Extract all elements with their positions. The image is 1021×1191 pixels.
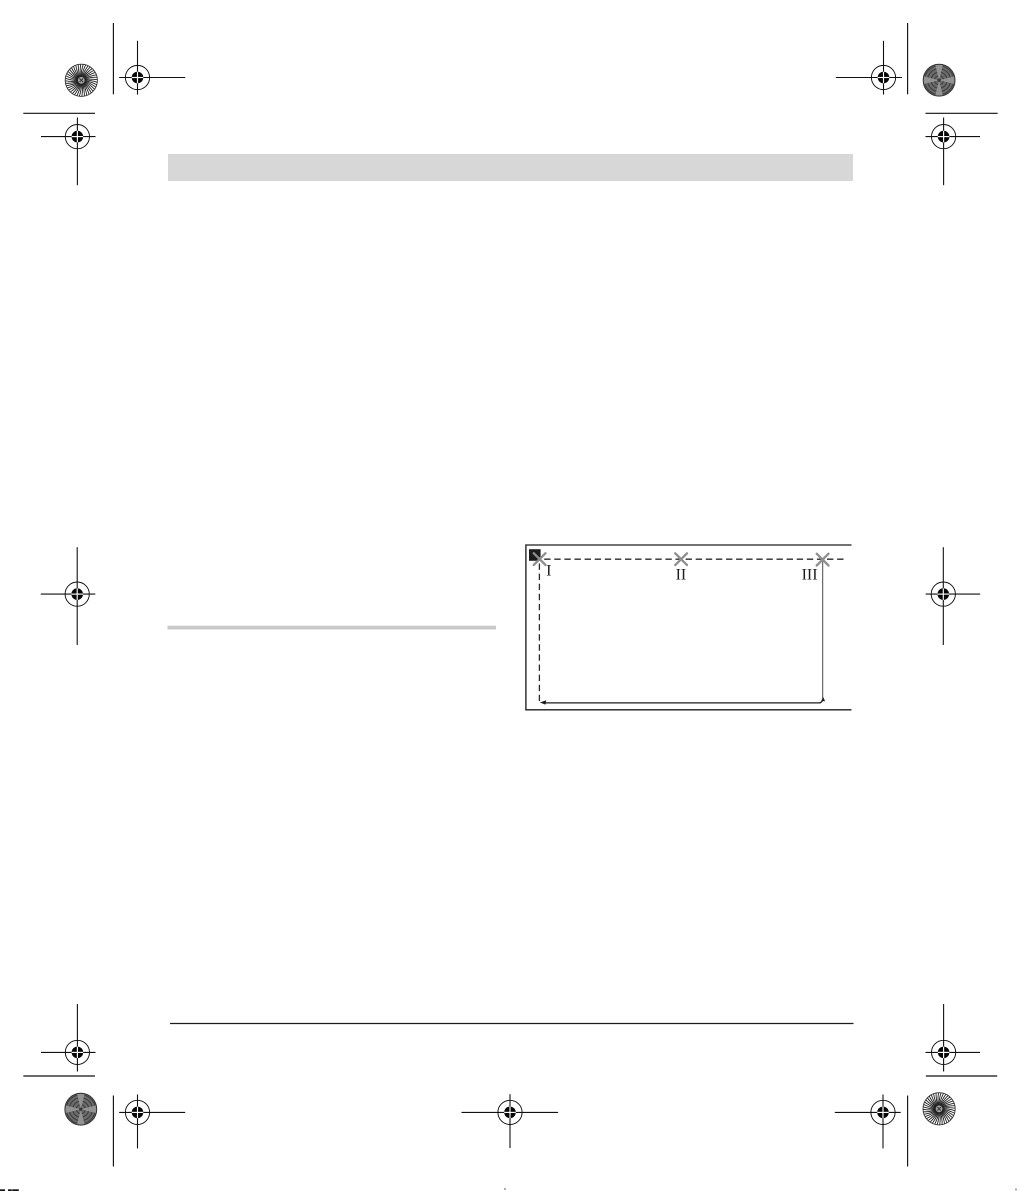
svg-text:III: III <box>802 566 818 583</box>
svg-text:I: I <box>546 562 551 579</box>
svg-text:II: II <box>676 566 687 583</box>
